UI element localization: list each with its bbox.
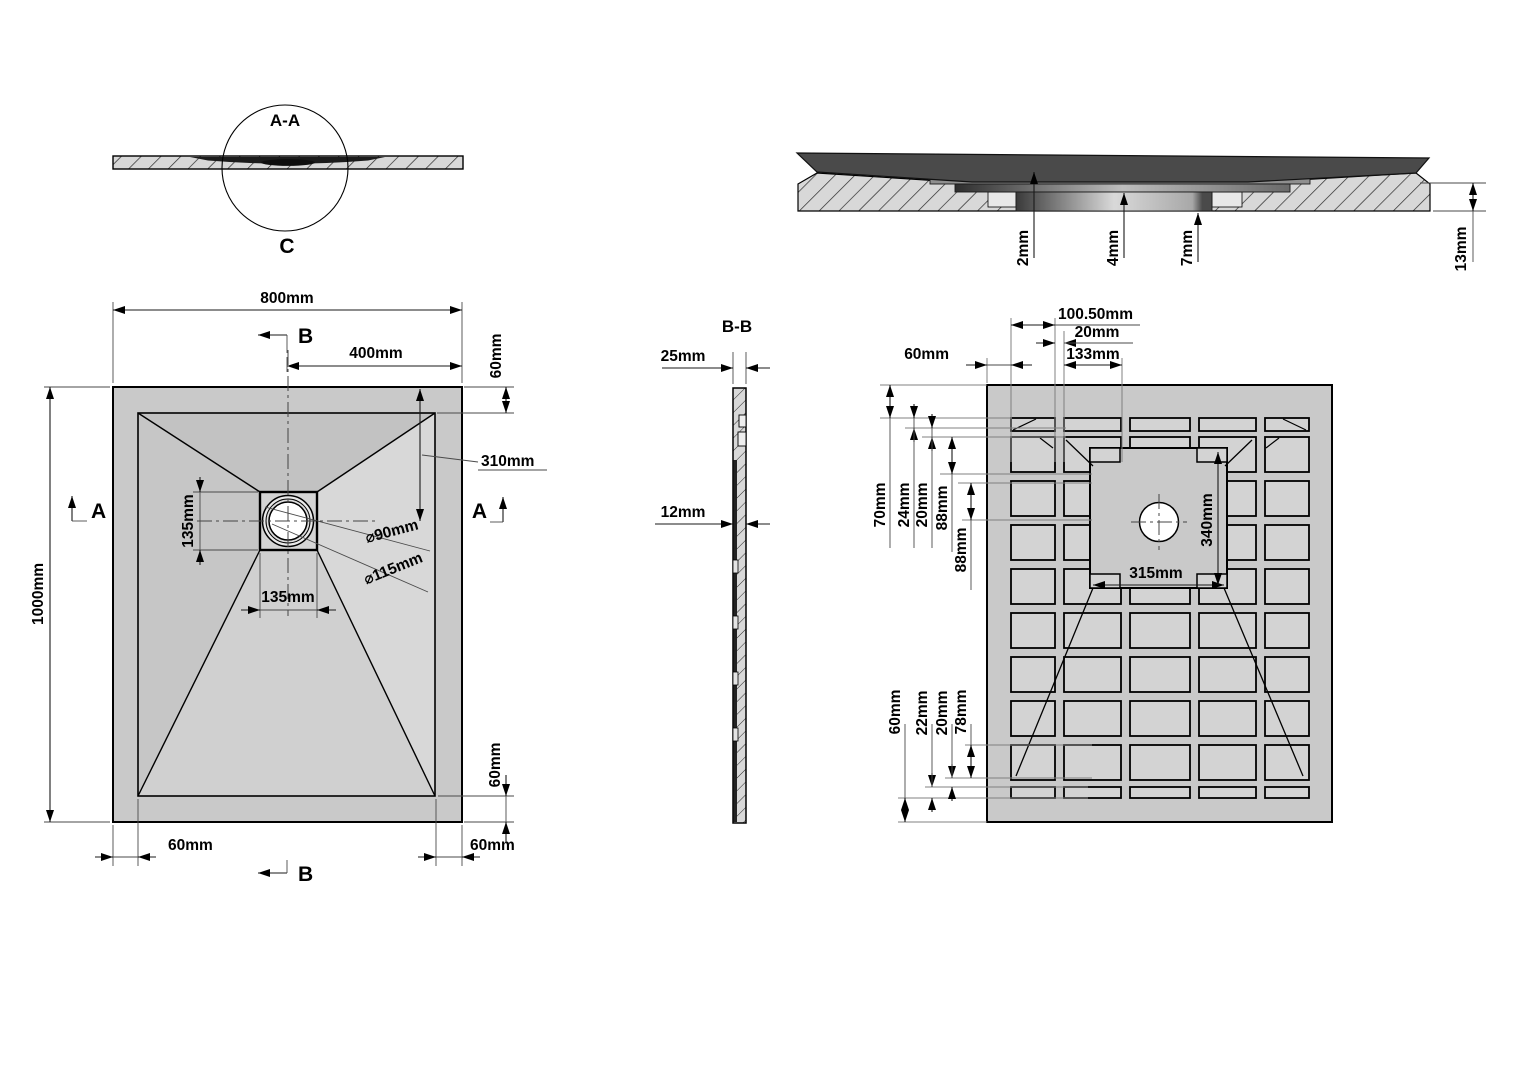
pocket-cell [1265,525,1309,560]
pocket-cell [1011,745,1055,780]
drawing-canvas: A-A C 2mm 4mm 7mm 13mm [0,0,1527,1080]
section-marker-a-right: A [472,500,487,523]
pocket-cell [1265,569,1309,604]
bb-dark-layer [734,460,738,822]
dim-center-to-edge: 400mm [349,345,402,362]
detail-drain-disc [1016,192,1212,211]
dim-rim-bottom-right: 60mm [470,837,515,854]
plan-view: 800mm B 400mm 60mm 310mm 135mm 135mm [30,290,547,886]
pocket-cell [1064,745,1121,780]
dim-step-2mm: 2mm [1015,230,1032,266]
dim-v88a: 88mm [934,486,951,531]
dim-center-height: 340mm [1199,493,1216,546]
dim-v88b: 88mm [953,528,970,573]
pocket-cell [1265,701,1309,736]
pocket-cell [1199,657,1256,692]
technical-drawing: A-A C 2mm 4mm 7mm 13mm [0,0,1527,1080]
dim-thickness-13mm: 13mm [1453,227,1470,272]
dim-v24: 24mm [896,483,913,528]
pocket-cell [1011,657,1055,692]
dim-bottom-rim-left: 60mm [904,346,949,363]
dim-web-width: 20mm [1075,324,1120,341]
pocket-cell [1064,418,1121,431]
dim-b78: 78mm [953,690,970,735]
pocket-cell [1199,787,1256,798]
pocket-cell [1265,481,1309,516]
pocket-cell [1011,569,1055,604]
section-aa-view: A-A C [113,105,463,258]
section-marker-b-bottom: B [298,863,313,886]
pocket-cell [1265,787,1309,798]
dim-v70: 70mm [872,483,889,528]
pocket-cell [1130,418,1190,431]
dim-b20: 20mm [934,691,951,736]
dim-pocket-offset: 100.50mm [1058,306,1133,323]
dim-drain-offset: 310mm [481,453,534,470]
pocket-cell [1265,418,1309,431]
detail-c-view: 2mm 4mm 7mm 13mm [797,153,1486,271]
dim-pocket-width: 133mm [1066,346,1119,363]
dim-b60: 60mm [887,690,904,735]
pocket-cell [1199,745,1256,780]
detail-shoulder-left [988,192,1016,207]
detail-shoulder-right [1212,192,1242,207]
pocket-cell [1265,437,1309,472]
pocket-cell [1011,525,1055,560]
dim-b22: 22mm [914,691,931,736]
detail-mid-plate [955,184,1290,192]
dim-v20: 20mm [914,483,931,528]
dim-center-width: 315mm [1129,565,1182,582]
pocket-cell [1064,787,1121,798]
section-bb-view: B-B 25mm 12mm [655,317,770,823]
dim-rim-bottom: 60mm [487,743,504,788]
dim-plan-width: 800mm [260,290,313,307]
pocket-cell [1265,657,1309,692]
dim-bb-top-thickness: 25mm [661,348,706,365]
pocket-cell [1011,613,1055,648]
dim-bb-mid-thickness: 12mm [661,504,706,521]
detail-c-label: C [279,235,294,258]
dim-plan-height: 1000mm [30,563,47,625]
pocket-cell [1130,657,1190,692]
aa-drain-section [261,159,315,166]
pocket-cell [1199,701,1256,736]
pocket-cell [1130,613,1190,648]
dim-rim-top: 60mm [488,334,505,379]
dim-rim-bottom-left: 60mm [168,837,213,854]
pocket-cell [1011,787,1055,798]
section-marker-b-top: B [298,325,313,348]
pocket-cell [1064,613,1121,648]
dim-drain-square-h: 135mm [180,494,197,547]
section-bb-title: B-B [722,317,752,336]
pocket-cell [1011,701,1055,736]
pocket-cell [1064,701,1121,736]
pocket-cell [1199,418,1256,431]
dim-step-4mm: 4mm [1105,230,1122,266]
pocket-cell [1011,481,1055,516]
bottom-view: 100.50mm 20mm 133mm 60mm 70mm 24mm 20mm [872,306,1332,822]
pocket-cell [1130,745,1190,780]
pocket-cell [1011,437,1055,472]
section-aa-title: A-A [270,111,300,130]
pocket-cell [1130,787,1190,798]
dim-step-7mm: 7mm [1179,230,1196,266]
section-marker-a-left: A [91,500,106,523]
pocket-cell [1130,701,1190,736]
pocket-cell [1265,613,1309,648]
dim-drain-square-w: 135mm [261,589,314,606]
pocket-cell [1064,657,1121,692]
